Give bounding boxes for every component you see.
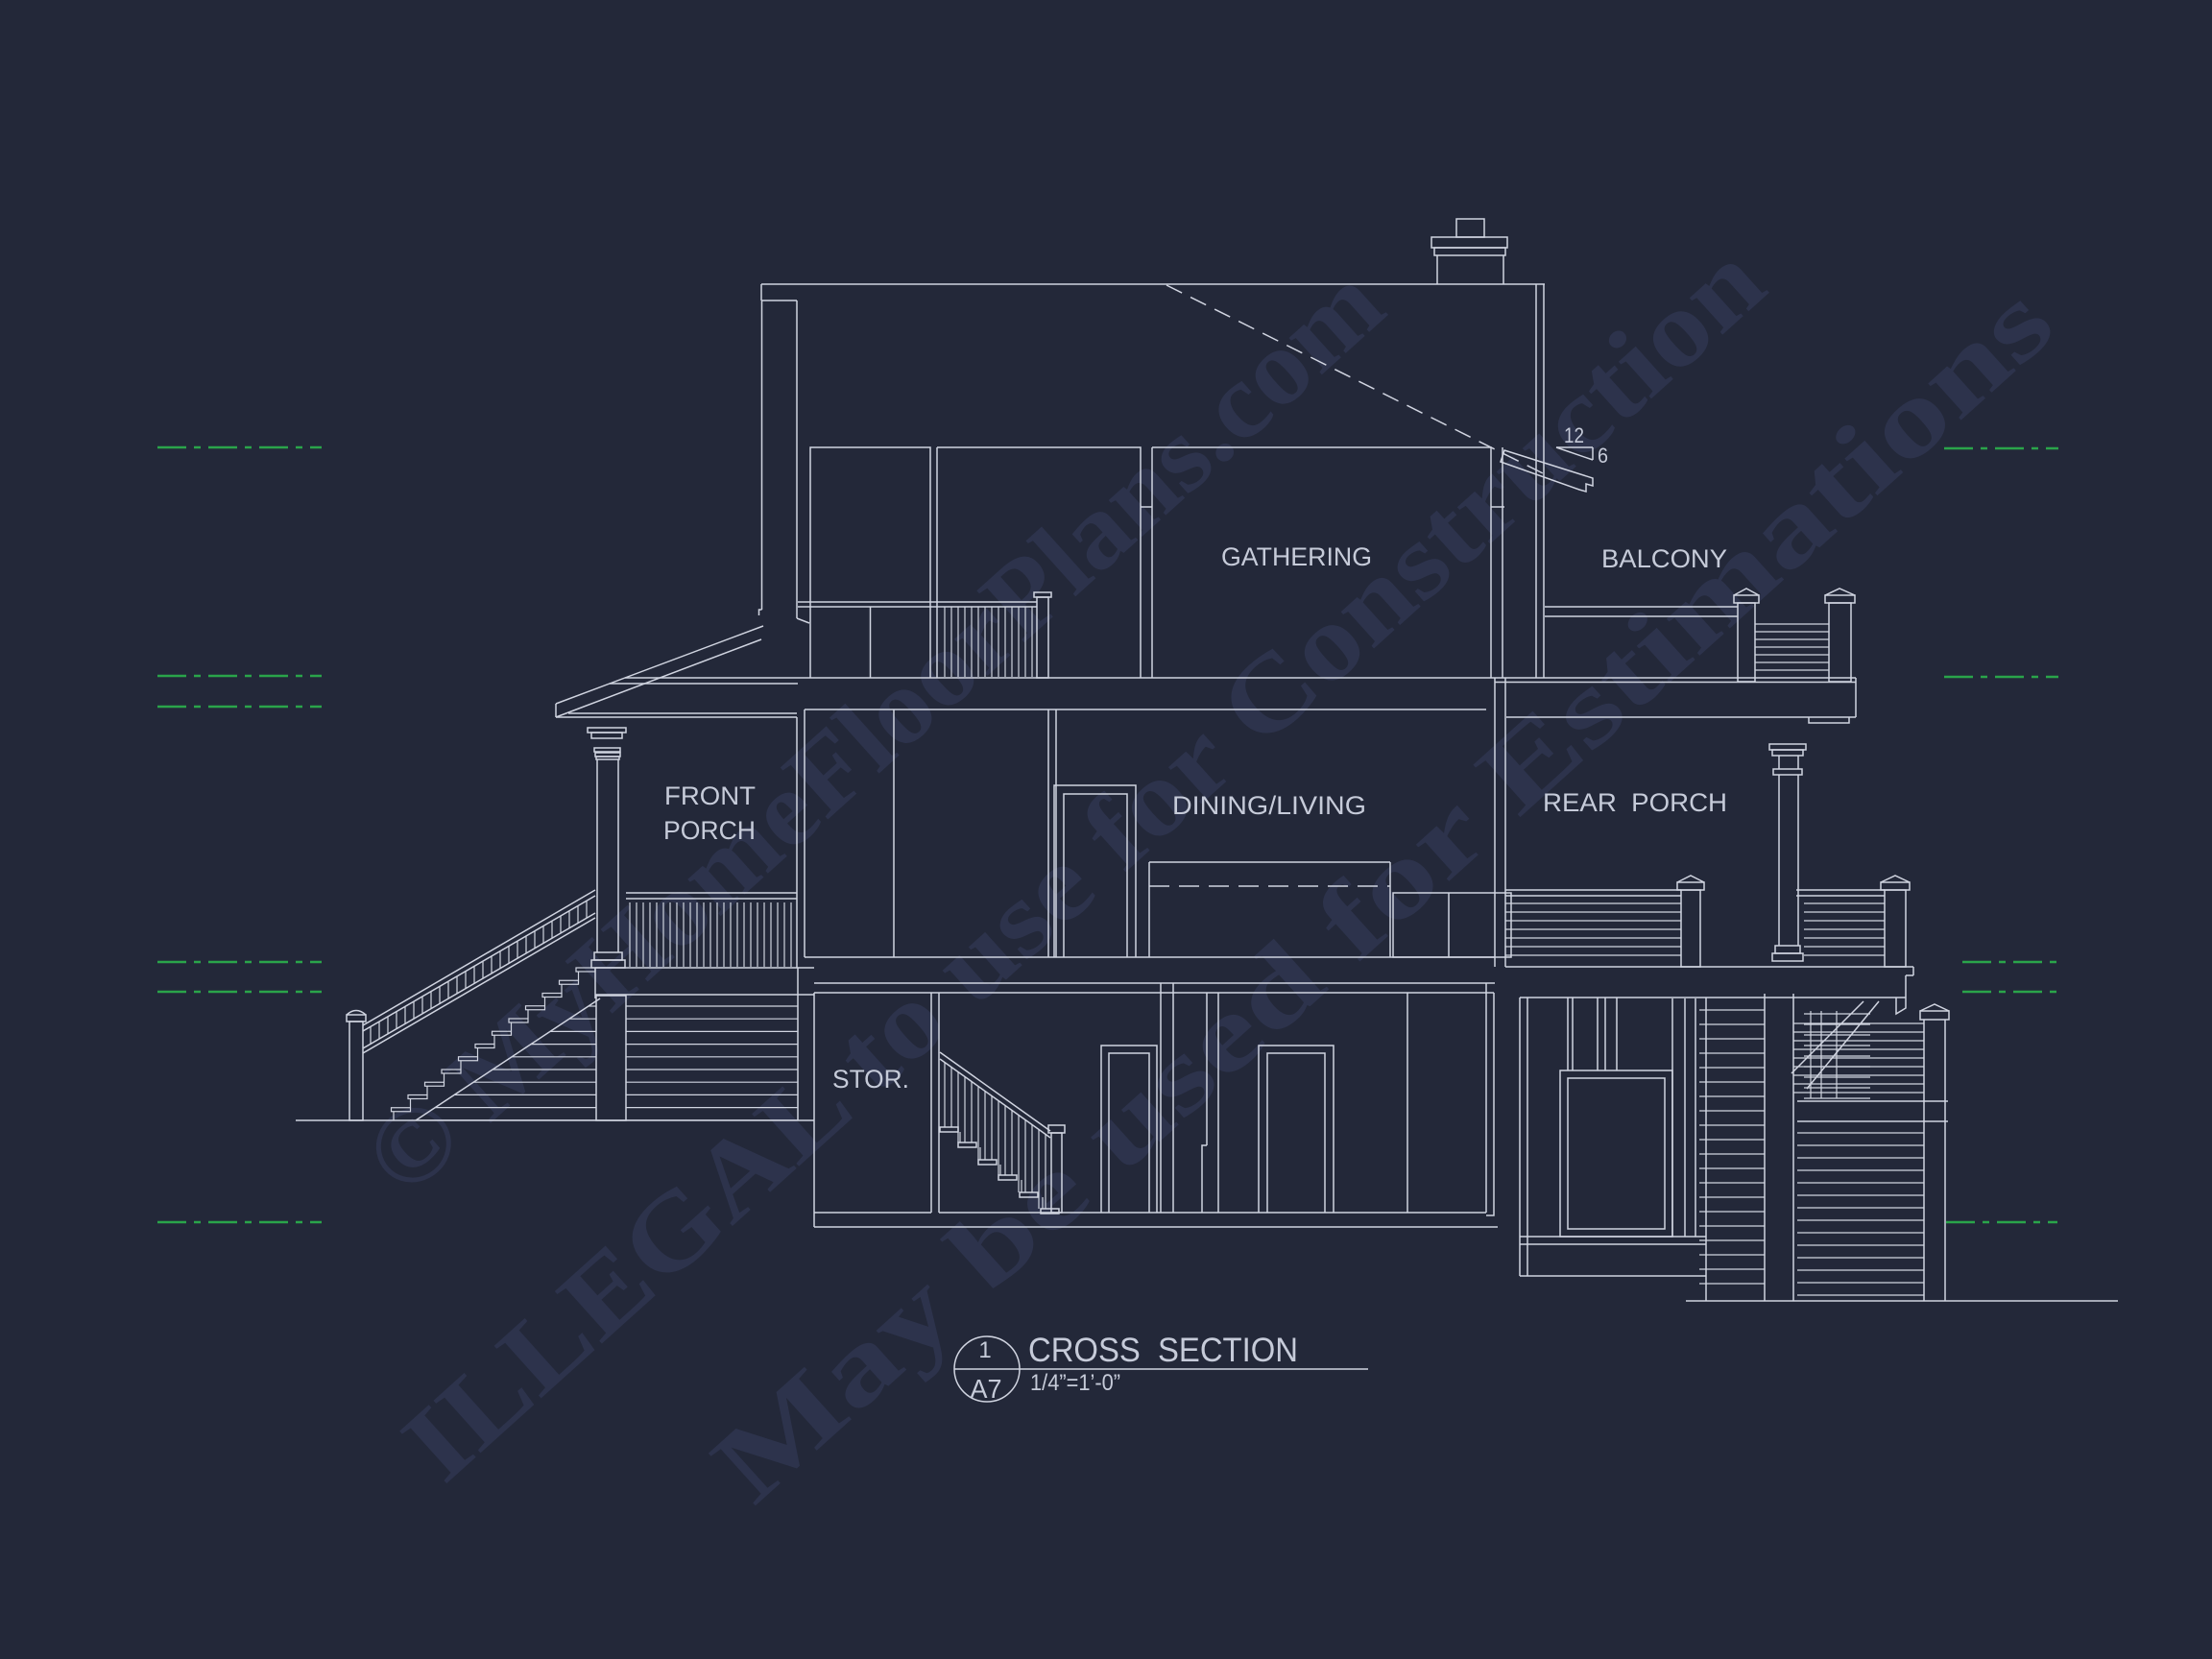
svg-text:PORCH: PORCH bbox=[663, 816, 756, 845]
svg-text:6: 6 bbox=[1598, 444, 1608, 468]
svg-text:BALCONY: BALCONY bbox=[1601, 544, 1727, 573]
svg-text:REAR PORCH: REAR PORCH bbox=[1543, 788, 1727, 817]
svg-text:DINING/LIVING: DINING/LIVING bbox=[1172, 791, 1366, 820]
svg-text:12: 12 bbox=[1564, 423, 1584, 447]
svg-text:STOR.: STOR. bbox=[832, 1065, 909, 1094]
svg-text:GATHERING: GATHERING bbox=[1221, 542, 1372, 571]
svg-text:FRONT: FRONT bbox=[664, 781, 756, 810]
svg-text:CROSS SECTION: CROSS SECTION bbox=[1028, 1332, 1298, 1369]
svg-text:A7: A7 bbox=[971, 1374, 1002, 1404]
svg-text:1/4”=1’-0”: 1/4”=1’-0” bbox=[1030, 1370, 1120, 1396]
svg-text:1: 1 bbox=[978, 1337, 991, 1363]
